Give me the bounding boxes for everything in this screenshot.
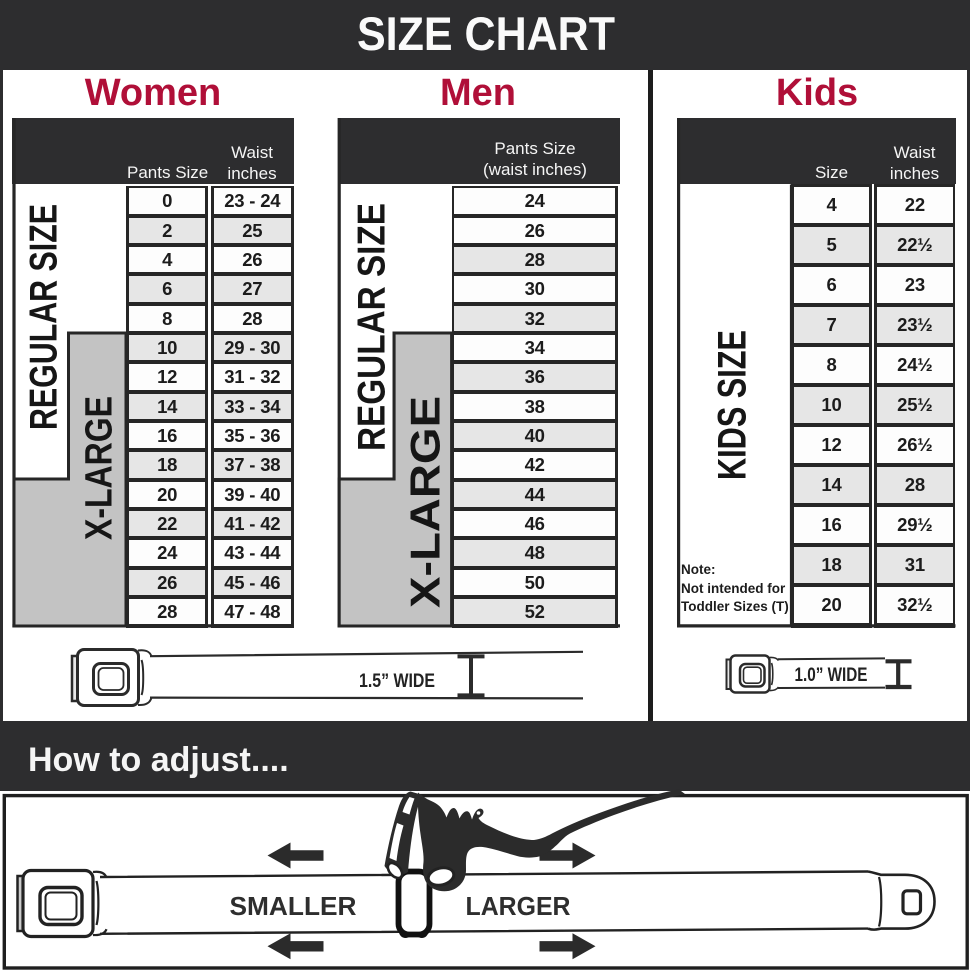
svg-text:SMALLER: SMALLER bbox=[230, 893, 357, 921]
svg-text:X-LARGE: X-LARGE bbox=[79, 396, 121, 540]
svg-text:X-LARGE: X-LARGE bbox=[402, 396, 449, 608]
svg-text:REGULAR SIZE: REGULAR SIZE bbox=[23, 204, 66, 430]
svg-text:1.0” WIDE: 1.0” WIDE bbox=[795, 665, 868, 686]
svg-text:REGULAR SIZE: REGULAR SIZE bbox=[351, 203, 394, 451]
svg-text:LARGER: LARGER bbox=[466, 893, 571, 921]
svg-text:1.5” WIDE: 1.5” WIDE bbox=[359, 670, 435, 692]
svg-text:KIDS SIZE: KIDS SIZE bbox=[711, 330, 755, 480]
